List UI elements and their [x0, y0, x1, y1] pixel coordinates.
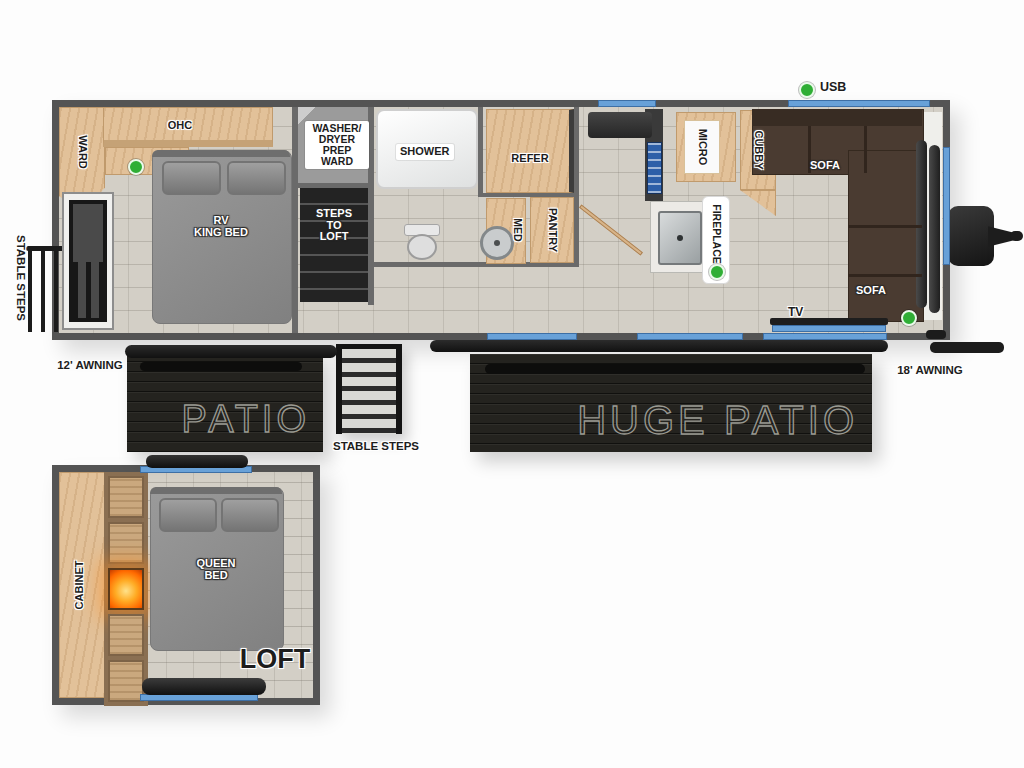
huge-patio-rail [485, 364, 865, 374]
shelf-cell [108, 614, 144, 656]
hitch-body [948, 206, 994, 266]
window-bottom-2 [763, 333, 887, 340]
window-top-1 [598, 100, 656, 107]
sofa-seam [864, 126, 867, 173]
king-bed-label: RV KING BED [176, 215, 266, 238]
loft-window-bottom [140, 694, 258, 701]
patio-label: PATIO [158, 398, 310, 441]
stable-steps-bottom-label: STABLE STEPS [320, 440, 432, 452]
door-window-bars [73, 262, 103, 318]
queen-bed-label: QUEEN BED [186, 558, 246, 581]
sofa-seam [848, 274, 922, 277]
sofa-top-back [752, 109, 922, 126]
sofa-top-label: SOFA [810, 160, 840, 172]
stable-steps-ladder [336, 344, 402, 434]
loft-fireplace [108, 568, 144, 610]
range-oven [647, 142, 662, 194]
toilet-bowl [407, 234, 437, 260]
fireplace-label: FIREPLACE [710, 204, 721, 264]
shelf-cell [108, 522, 144, 564]
queen-pillow-right [221, 498, 279, 532]
awning-rail-right [430, 340, 888, 352]
huge-patio-label: HUGE PATIO [528, 398, 858, 443]
bed-pillow-right [227, 161, 286, 195]
cubby-label: CUBBY [752, 130, 764, 169]
loft-staircase [300, 188, 368, 302]
tv [770, 318, 888, 325]
med-label: MED [511, 218, 522, 241]
micro-label: MICRO [696, 129, 708, 166]
loft-shelf-column [104, 472, 148, 706]
shelf-cell [108, 476, 144, 518]
patio-deck-rail [140, 362, 302, 371]
wall-shower-refer [478, 107, 483, 197]
usb-indicator-callout [799, 82, 815, 98]
queen-pillow-left [159, 498, 217, 532]
bath-sink-drain [494, 240, 500, 246]
washer-dryer-label: WASHER/ DRYER PREP WARD [305, 121, 369, 169]
refer-label: REFER [505, 153, 555, 165]
bolster-cushion [916, 140, 927, 308]
bed-pillow-left [162, 161, 221, 195]
bumper-bar-small [926, 330, 946, 339]
sofa-seam [848, 225, 922, 228]
rv-floorplan: WARD OHC RV KING BED STABLE STEPS WASHER… [0, 0, 1024, 768]
wall-pantry-right [574, 107, 579, 267]
bumper-bar [930, 342, 1004, 353]
bed-headboard [152, 150, 290, 157]
awning-left-label: 12' AWNING [42, 359, 138, 371]
range-hood [588, 112, 652, 138]
usb-indicator-bedroom [128, 159, 144, 175]
ward-label: WARD [76, 135, 88, 169]
shelf-cell [108, 660, 144, 702]
refrigerator [486, 109, 574, 193]
window-right [943, 147, 950, 265]
awning-rail-left [125, 345, 337, 358]
awning-right-label: 18' AWNING [884, 364, 976, 376]
tv-label: TV [788, 306, 803, 319]
window-bottom-1 [487, 333, 577, 340]
usb-indicator-fireplace [709, 264, 725, 280]
window-top-2 [788, 100, 930, 107]
steps-to-loft-label: STEPS TO LOFT [307, 208, 361, 243]
wall-bedroom [292, 107, 298, 333]
queen-bed-headboard [150, 487, 282, 494]
tv-window [772, 325, 886, 332]
loft-bottom-vent-cover [142, 678, 266, 695]
kitchen-sink-drain [677, 235, 683, 241]
hitch-tip [1010, 231, 1023, 241]
bolster-cushion [929, 145, 940, 313]
patio-door-glass [637, 333, 743, 340]
entry-step-rails [28, 250, 64, 332]
loft-title: LOFT [232, 645, 318, 673]
pantry-label: PANTRY [546, 208, 558, 252]
ohc-label: OHC [150, 120, 210, 132]
usb-label: USB [820, 81, 846, 94]
shower-label: SHOWER [396, 144, 454, 160]
sofa-right-label: SOFA [856, 285, 886, 297]
loft-top-vent-cover [146, 455, 248, 468]
cabinet-label: CABINET [74, 561, 86, 610]
usb-indicator-living [901, 310, 917, 326]
stable-steps-left-label: STABLE STEPS [15, 235, 27, 321]
